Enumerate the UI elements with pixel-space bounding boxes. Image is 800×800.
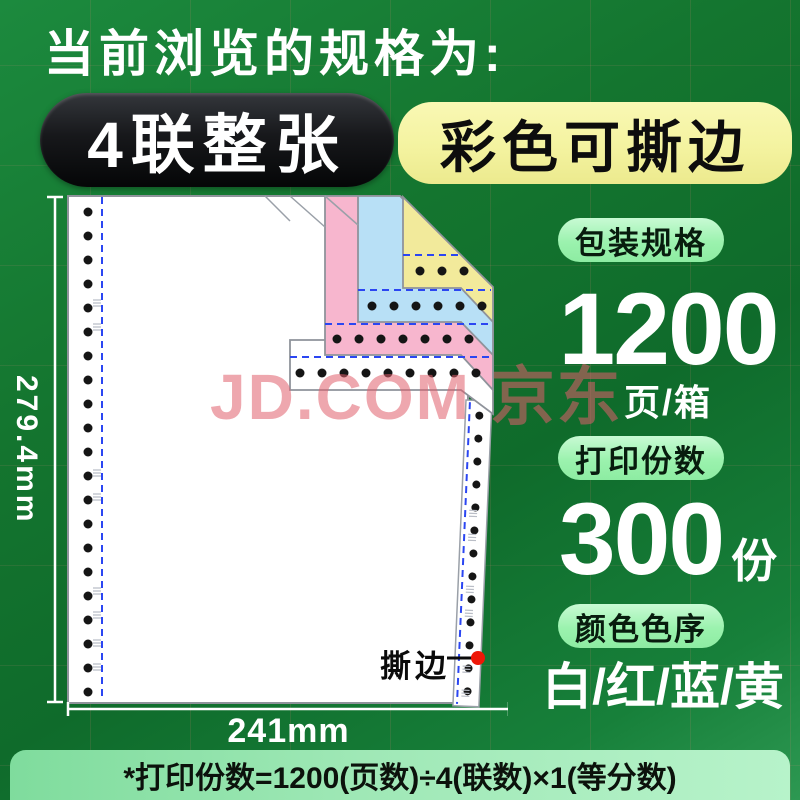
width-dimension-label: 241mm [68, 712, 509, 751]
spec-pill-color-order-label: 颜色色序 [575, 604, 707, 649]
color-order-value: 白/红/蓝/黄 [528, 662, 798, 712]
spec-pill-copies: 打印份数 [558, 436, 724, 480]
height-dimension-label: 279.4mm [6, 196, 46, 703]
page-title: 当前浏览的规格为: [44, 14, 764, 86]
spec-badge-color-tear: 彩色可撕边 [398, 102, 792, 184]
copies-value: 300 [559, 488, 723, 590]
tear-pointer-dot [471, 651, 485, 665]
packaging-unit: 页/箱 [540, 374, 796, 426]
spec-pill-packaging-label: 包装规格 [575, 218, 707, 263]
spec-pill-packaging: 包装规格 [558, 218, 724, 262]
tear-edge-label: 撕边 [380, 641, 450, 686]
spec-pill-color-order: 颜色色序 [558, 604, 724, 648]
copies-value-row: 300 份 [540, 488, 796, 590]
copies-unit: 份 [731, 538, 777, 590]
footnote-text: *打印份数=1200(页数)÷4(联数)×1(等分数) [123, 753, 676, 797]
spec-badge-color-tear-label: 彩色可撕边 [440, 103, 750, 184]
spec-badge-plies: 4联整张 [40, 93, 394, 187]
spec-badge-plies-label: 4联整张 [87, 94, 347, 186]
product-promo-image: 当前浏览的规格为: 4联整张 彩色可撕边 [0, 0, 800, 800]
footnote-bar: *打印份数=1200(页数)÷4(联数)×1(等分数) [10, 750, 790, 800]
spec-pill-copies-label: 打印份数 [575, 436, 707, 481]
packaging-value: 1200 [540, 278, 796, 380]
